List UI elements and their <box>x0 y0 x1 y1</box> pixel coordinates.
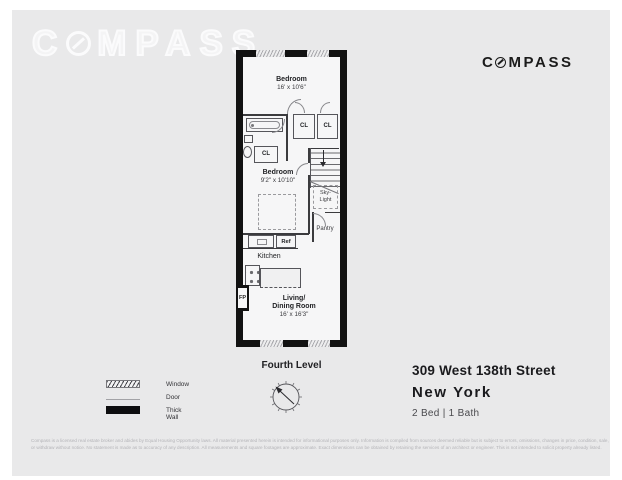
room-name: Pantry <box>310 226 340 234</box>
listing-city: New York <box>412 384 492 401</box>
toilet-icon <box>243 146 252 158</box>
legend-label: Window <box>166 381 189 388</box>
room-line1: Living/ <box>257 295 331 303</box>
partition-wall <box>325 212 340 213</box>
bedroom1-label: Bedroom 16' x 10'6" <box>253 76 330 92</box>
compass-watermark-logo: CMPASS <box>32 24 264 64</box>
bed-outline <box>258 194 296 230</box>
listing-address: 309 West 138th Street <box>412 363 556 378</box>
stairs-down-arrow-head <box>320 162 326 167</box>
watermark-logo-pre: C <box>32 24 66 63</box>
partition-wall <box>286 114 288 161</box>
partition-wall <box>243 114 287 116</box>
kitchen-label: Kitchen <box>248 253 290 261</box>
room-line2: Dining Room <box>257 303 331 311</box>
legend-label: Door <box>166 394 180 401</box>
kitchen-island <box>260 268 301 288</box>
brand-logo-pre: C <box>482 54 495 71</box>
kitchen-sink-counter <box>248 235 274 248</box>
sink-icon <box>244 135 253 143</box>
door-arc <box>313 213 326 226</box>
ref-label: Ref <box>277 239 295 245</box>
brand-logo-post: MPASS <box>508 54 573 71</box>
room-name: Bedroom <box>253 76 330 84</box>
window-top-2 <box>307 50 329 57</box>
pantry-label: Pantry <box>310 226 340 234</box>
legend-label: Thick Wall <box>166 407 182 421</box>
door-arc <box>272 119 285 133</box>
door-swatch-icon <box>106 399 140 400</box>
partition-wall <box>243 248 298 249</box>
door-arc <box>320 102 330 113</box>
floorplan-sheet: CMPASS CMPASS Bedroom 16' x 10'6" <box>0 0 622 480</box>
skylight-label: Sky- Light <box>313 190 338 203</box>
room-dims: 16' x 10'6" <box>253 84 330 92</box>
thick-wall-swatch-icon <box>106 406 140 414</box>
fireplace-label: FP <box>238 288 247 308</box>
room-dims: 9'2" x 10'10" <box>247 177 309 185</box>
disclaimer: Compass is a licensed real estate broker… <box>31 437 591 451</box>
disclaimer-line2: or withdraw without notice. No statement… <box>31 444 591 451</box>
closet-label: CL <box>294 123 314 129</box>
window-bottom-1 <box>260 340 283 347</box>
window-swatch-icon <box>106 380 140 388</box>
slashed-o-icon <box>66 31 91 56</box>
closet-3: CL <box>254 146 278 163</box>
disclaimer-line1: Compass is a licensed real estate broker… <box>31 437 591 444</box>
listing-beds-baths: 2 Bed | 1 Bath <box>412 408 479 419</box>
floor-plan: Bedroom 16' x 10'6" CL <box>236 50 347 347</box>
room-dims: 16' x 16'3" <box>257 311 331 319</box>
skylight-line2: Light <box>313 197 338 204</box>
closet-1: CL <box>293 114 315 139</box>
kitchen-sink-icon <box>257 239 267 245</box>
plan-interior: Bedroom 16' x 10'6" CL <box>243 57 340 340</box>
compass-brand-logo: CMPASS <box>482 54 574 71</box>
fireplace: FP <box>236 285 249 311</box>
faucet-icon <box>251 124 254 127</box>
window-top-1 <box>256 50 285 57</box>
compass-rose-icon <box>266 377 306 417</box>
closet-label: CL <box>318 123 337 129</box>
door-arc <box>295 102 305 113</box>
closet-label: CL <box>255 151 277 157</box>
room-name: Kitchen <box>248 253 290 261</box>
level-label: Fourth Level <box>236 360 347 371</box>
door-arc <box>296 163 308 175</box>
living-room-label: Living/ Dining Room 16' x 16'3" <box>257 295 331 319</box>
slashed-o-icon <box>495 57 506 68</box>
refrigerator: Ref <box>276 235 296 248</box>
window-bottom-2 <box>308 340 330 347</box>
stove-icon <box>245 265 260 286</box>
closet-2: CL <box>317 114 338 139</box>
